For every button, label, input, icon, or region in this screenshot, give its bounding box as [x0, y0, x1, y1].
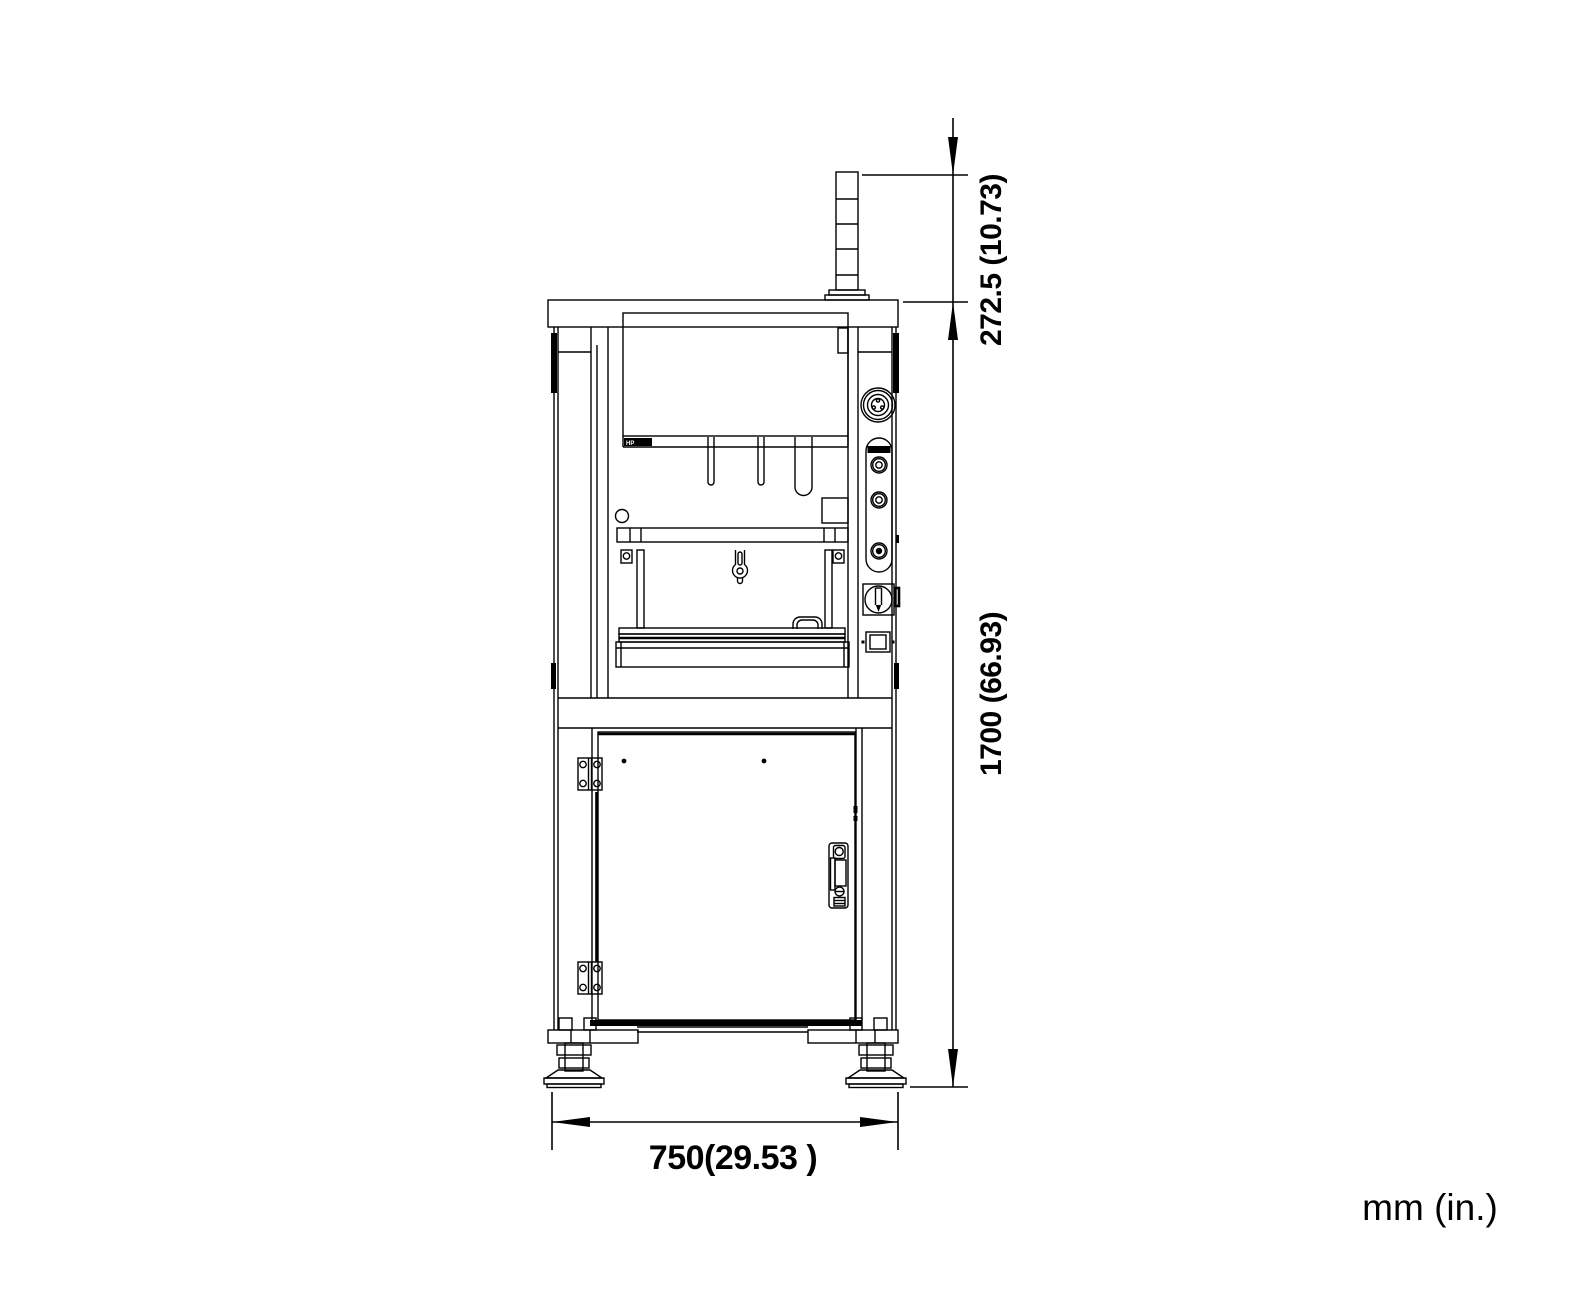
head-panel-cover: [623, 313, 848, 436]
frame-hole: [616, 510, 629, 523]
base-bracket-right: [808, 1030, 898, 1043]
work-table: [616, 617, 849, 667]
hinge-bolt: [580, 984, 586, 990]
dim-machine-width: 750(29.53 ): [552, 1092, 898, 1177]
machine-front-view-svg: HP: [0, 0, 1576, 1300]
hinge-bolt: [594, 984, 600, 990]
right-edge-tick: [896, 535, 899, 543]
connector-pin-left: [862, 641, 865, 644]
estop-mark: [876, 399, 879, 402]
right-corner-bracket: [822, 498, 848, 523]
door-latch-handle: [829, 843, 848, 908]
door-latch-tick: [854, 816, 858, 821]
tower-body: [836, 172, 858, 290]
guide-rod-left: [708, 437, 714, 485]
latch-grip: [834, 898, 845, 907]
connector-pin-right: [892, 641, 895, 644]
leveling-foot-left: [544, 1043, 604, 1088]
foot-stem: [867, 1043, 885, 1071]
estop-bezel: [868, 395, 889, 416]
pushbutton-1-bezel: [873, 459, 886, 472]
door-screw-dot: [762, 759, 767, 764]
foot-nut-upper: [557, 1045, 591, 1055]
dimension-drawing: HP: [0, 0, 1576, 1300]
arrowhead-down: [948, 137, 958, 175]
guide-rod-middle: [758, 437, 764, 485]
table-body: [616, 642, 849, 667]
hinge-bolt: [580, 761, 586, 767]
left-guide-post: [637, 550, 644, 628]
frame-walls: [551, 327, 899, 1030]
emergency-stop-button: [861, 388, 895, 422]
hinge-bolt: [580, 965, 586, 971]
door-screw-dot: [622, 759, 627, 764]
base-bracket-left: [548, 1030, 638, 1043]
left-edge-tab-lower: [551, 663, 556, 689]
right-guide-post: [825, 550, 832, 628]
lower-cabinet: [578, 728, 862, 1020]
latch-recess: [835, 860, 846, 886]
right-edge-tab-lower: [894, 663, 899, 689]
door-latch-tick: [854, 806, 858, 813]
pushbutton-panel-label: [868, 446, 891, 453]
arrowhead-up: [948, 302, 958, 340]
tower-flange-upper: [829, 290, 865, 295]
foot-pad: [544, 1078, 604, 1084]
latch-lock-cylinder: [835, 848, 843, 856]
foot-pad: [846, 1078, 906, 1084]
center-tool: [733, 550, 748, 584]
control-column: [861, 388, 899, 652]
left-stop-bolt: [623, 553, 629, 559]
tool-slot: [738, 552, 742, 565]
foot-nut-lower: [861, 1058, 891, 1068]
base-lug: [559, 1018, 572, 1030]
pushbutton-1-cap: [876, 462, 882, 468]
tool-tip: [738, 578, 743, 584]
cabinet-door: [598, 732, 855, 1020]
foot-pad-base: [547, 1084, 601, 1088]
pushbutton-2-cap: [876, 497, 882, 503]
table-strip-1: [619, 628, 845, 634]
dim-machine-height: 1700 (66.93): [910, 302, 1008, 1087]
hinge-bolt: [594, 965, 600, 971]
right-edge-tab-upper: [893, 333, 899, 393]
base-dark-rail: [590, 1020, 862, 1026]
power-switch-side-tab: [895, 588, 899, 606]
tower-height-label: 272.5 (10.73): [975, 174, 1008, 346]
leveling-foot-right: [846, 1043, 906, 1088]
machine-width-label: 750(29.53 ): [649, 1139, 817, 1177]
dim-tower-height: 272.5 (10.73): [862, 118, 1008, 346]
units-note: mm (in.): [1362, 1187, 1498, 1228]
arrowhead-right: [860, 1117, 898, 1127]
foot-nut-upper: [859, 1045, 893, 1055]
guide-rod-right: [795, 437, 812, 496]
head-panel-bracket: [838, 328, 848, 353]
head-panel: HP: [623, 313, 848, 447]
left-edge-tab-upper: [551, 333, 557, 393]
guide-rods: [708, 437, 812, 496]
base-frame: [544, 1018, 906, 1088]
press-area: [616, 498, 850, 667]
estop-mark: [872, 406, 875, 409]
machine-height-label: 1700 (66.93): [975, 612, 1008, 776]
main-power-switch: [863, 584, 899, 615]
power-switch-pointer: [876, 605, 881, 612]
tower-flange-lower: [825, 295, 869, 300]
connector-port: [862, 632, 895, 652]
hinge-bolt: [580, 780, 586, 786]
hinge-bolt: [594, 780, 600, 786]
pushbutton-panel: [866, 438, 892, 572]
head-panel-nameplate-text: HP: [626, 441, 634, 447]
right-stop-bolt: [835, 553, 841, 559]
foot-stem: [565, 1043, 583, 1071]
pushbutton-3-cap: [876, 548, 882, 554]
foot-nut-lower: [559, 1058, 589, 1068]
hinge-bolt: [594, 761, 600, 767]
cross-beam: [617, 528, 848, 542]
tool-pin: [737, 568, 743, 574]
estop-outer-ring: [861, 388, 895, 422]
signal-tower: [825, 172, 869, 300]
connector-inner: [870, 635, 886, 649]
foot-pad-base: [849, 1084, 903, 1088]
pushbutton-2-bezel: [873, 494, 886, 507]
arrowhead-down: [948, 1049, 958, 1087]
arrowhead-left: [552, 1117, 590, 1127]
base-lug: [874, 1018, 887, 1030]
estop-mark: [881, 406, 884, 409]
